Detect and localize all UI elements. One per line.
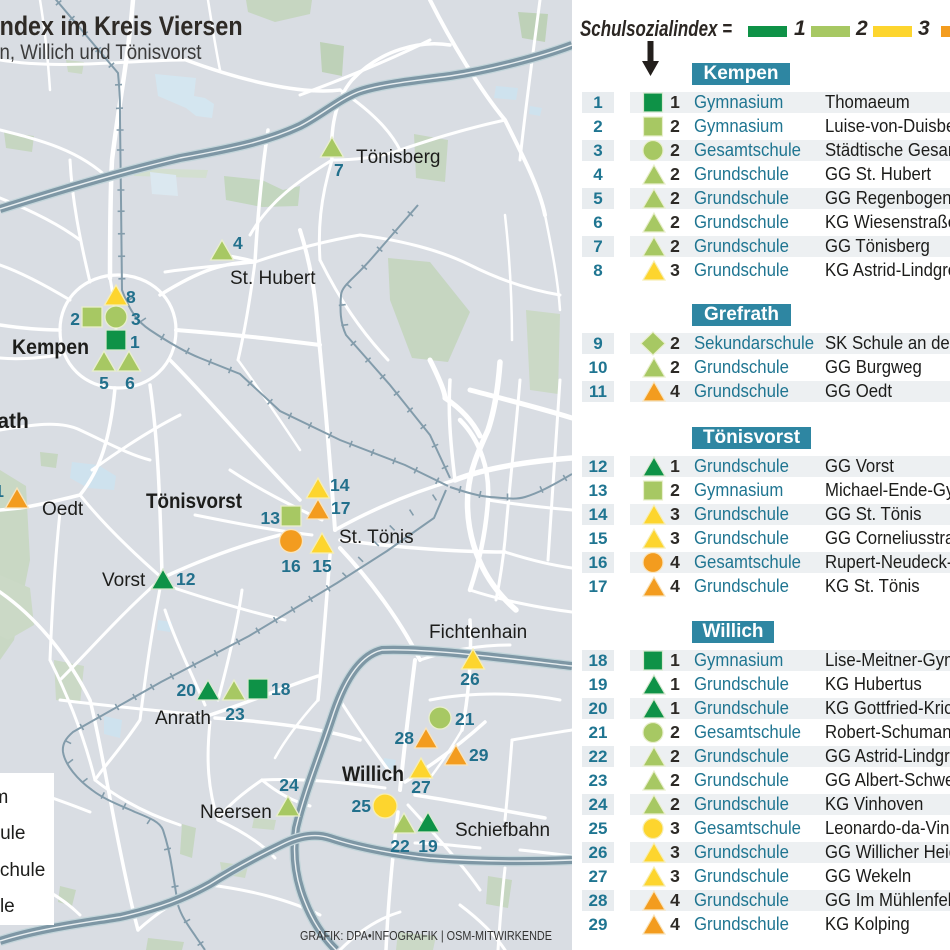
svg-text:Schiefbahn: Schiefbahn: [455, 820, 550, 841]
svg-text:13: 13: [261, 508, 281, 528]
svg-text:25: 25: [352, 796, 372, 816]
svg-text:Oedt: Oedt: [42, 499, 84, 520]
svg-text:18: 18: [271, 679, 291, 699]
svg-text:7: 7: [334, 160, 344, 180]
svg-text:Gesamtschule: Gesamtschule: [0, 823, 25, 844]
svg-text:Sekundarschule: Sekundarschule: [0, 860, 45, 881]
svg-text:Fichtenhain: Fichtenhain: [429, 622, 527, 643]
svg-text:12: 12: [176, 569, 196, 589]
svg-text:19: 19: [418, 836, 438, 856]
svg-text:6: 6: [125, 373, 135, 393]
svg-text:21: 21: [455, 709, 475, 729]
svg-text:Neersen: Neersen: [200, 802, 272, 823]
svg-text:3: 3: [131, 309, 141, 329]
svg-text:4: 4: [233, 233, 243, 253]
svg-text:Willich: Willich: [342, 763, 404, 786]
svg-text:5: 5: [99, 373, 109, 393]
svg-text:28: 28: [395, 728, 415, 748]
svg-text:24: 24: [279, 775, 299, 795]
svg-text:Tönisvorst: Tönisvorst: [146, 490, 242, 513]
svg-text:27: 27: [411, 777, 430, 797]
svg-text:St. Hubert: St. Hubert: [230, 268, 316, 289]
svg-text:Kempen: Kempen: [12, 336, 89, 359]
svg-text:Grundschule: Grundschule: [0, 896, 15, 917]
svg-text:2: 2: [70, 309, 80, 329]
svg-text:1: 1: [130, 332, 140, 352]
svg-text:16: 16: [281, 556, 301, 576]
svg-text:29: 29: [469, 745, 489, 765]
svg-text:St. Tönis: St. Tönis: [339, 527, 414, 548]
svg-text:Vorst: Vorst: [102, 570, 146, 591]
svg-text:Tönisberg: Tönisberg: [356, 147, 441, 168]
svg-text:17: 17: [331, 498, 350, 518]
svg-text:Gymnasium: Gymnasium: [0, 787, 8, 808]
svg-text:14: 14: [330, 475, 350, 495]
svg-text:Anrath: Anrath: [155, 708, 211, 729]
svg-text:11: 11: [0, 481, 4, 501]
svg-text:GRAFIK: DPA•INFOGRAFIK | OSM-M: GRAFIK: DPA•INFOGRAFIK | OSM-MITWIRKENDE: [300, 929, 552, 943]
svg-text:Grefrath: Grefrath: [0, 410, 29, 433]
svg-text:8: 8: [126, 287, 136, 307]
svg-text:22: 22: [390, 836, 410, 856]
svg-text:20: 20: [177, 680, 197, 700]
svg-text:26: 26: [460, 669, 480, 689]
svg-text:15: 15: [312, 556, 332, 576]
svg-text:23: 23: [225, 704, 245, 724]
